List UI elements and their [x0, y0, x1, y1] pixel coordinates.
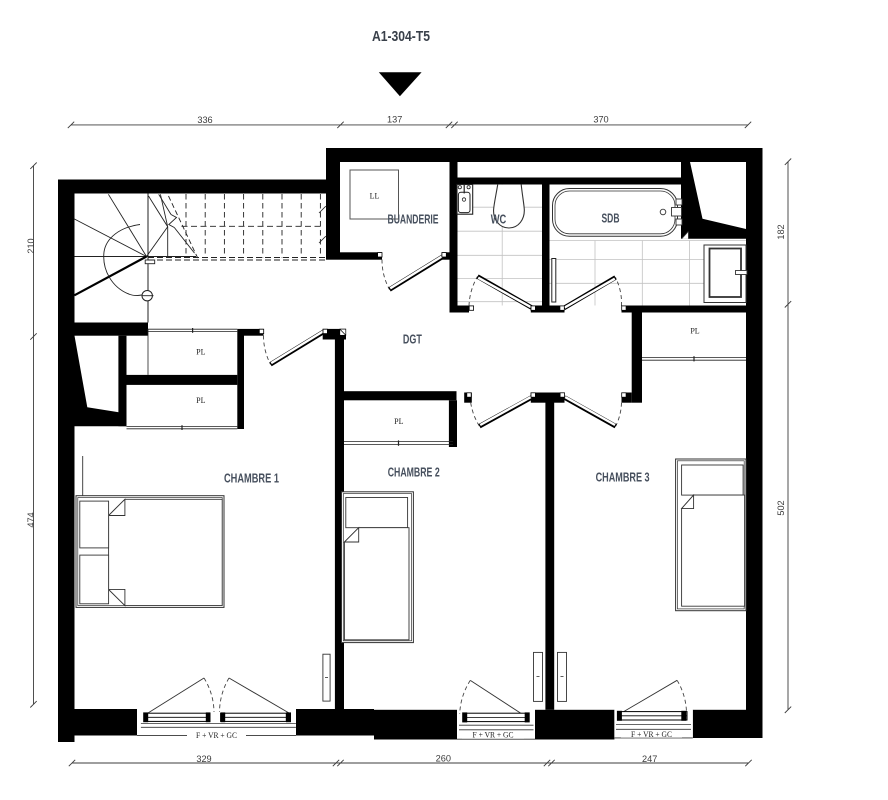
svg-text:247: 247 — [642, 754, 657, 764]
svg-text:SDB: SDB — [602, 211, 620, 226]
svg-text:BUANDERIE: BUANDERIE — [388, 212, 439, 227]
svg-text:474: 474 — [26, 512, 36, 527]
svg-text:LL: LL — [370, 192, 380, 201]
svg-text:F + VR + GC: F + VR + GC — [473, 731, 514, 740]
svg-text:336: 336 — [197, 115, 212, 125]
svg-text:210: 210 — [26, 238, 36, 253]
svg-text:PL: PL — [196, 396, 205, 405]
svg-text:PL: PL — [196, 348, 205, 357]
svg-text:DGT: DGT — [403, 332, 422, 347]
svg-text:329: 329 — [196, 754, 211, 764]
svg-text:182: 182 — [776, 224, 786, 239]
svg-text:A1-304-T5: A1-304-T5 — [372, 28, 430, 45]
svg-text:CHAMBRE 2: CHAMBRE 2 — [388, 465, 440, 480]
svg-text:CHAMBRE 1: CHAMBRE 1 — [224, 471, 279, 486]
svg-text:502: 502 — [776, 500, 786, 515]
svg-text:PL: PL — [394, 417, 403, 426]
svg-text:CHAMBRE 3: CHAMBRE 3 — [596, 470, 650, 485]
svg-text:WC: WC — [491, 212, 507, 227]
svg-text:PL: PL — [690, 327, 699, 336]
svg-text:F + VR + GC: F + VR + GC — [196, 731, 237, 740]
svg-text:F + VR + GC: F + VR + GC — [631, 730, 672, 739]
svg-text:260: 260 — [436, 754, 451, 764]
svg-text:137: 137 — [387, 115, 402, 125]
svg-text:370: 370 — [593, 114, 608, 124]
